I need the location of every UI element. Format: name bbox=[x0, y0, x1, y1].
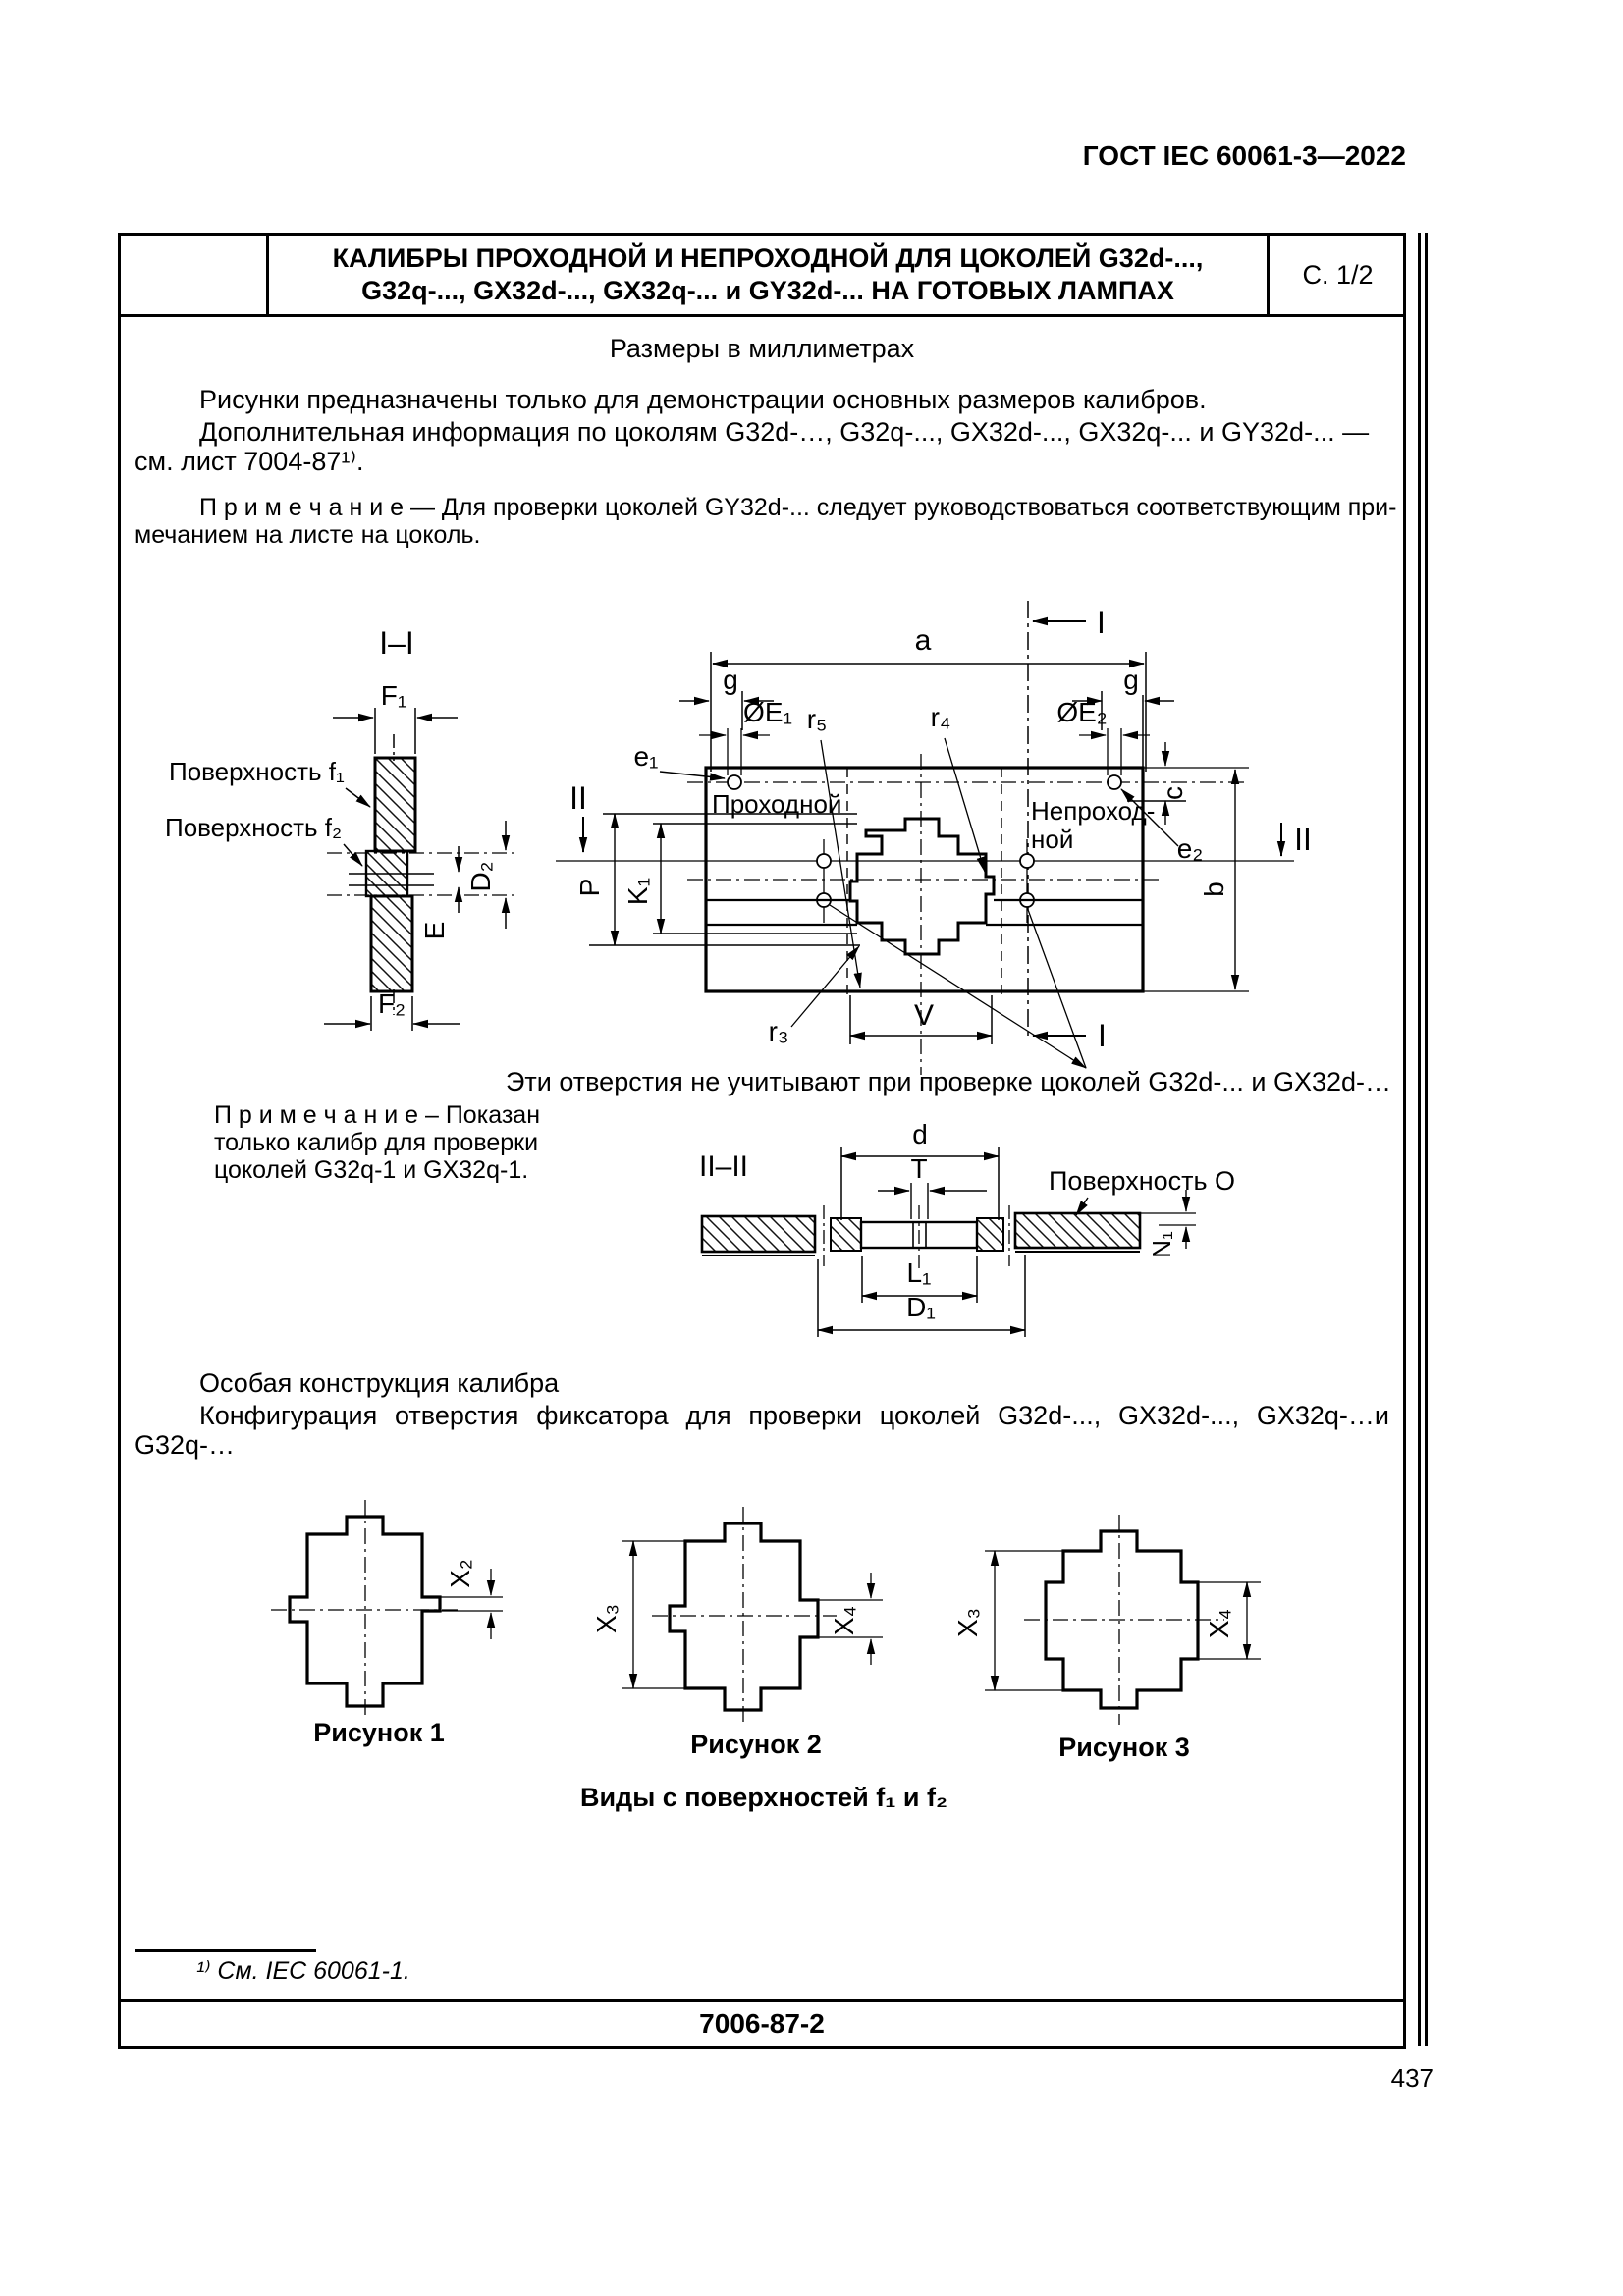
page-number: 437 bbox=[1335, 2063, 1434, 2094]
dim-label-r3: r₃ bbox=[769, 1016, 789, 1046]
locking-hole-outline bbox=[850, 819, 994, 954]
nogo-label-line1: Непроход- bbox=[1031, 796, 1155, 826]
dim-label-x3-fig2: X₃ bbox=[591, 1604, 622, 1633]
dim-label-g-right: g bbox=[1123, 665, 1139, 695]
footnote-text: ¹⁾ См. IEC 60061-1. bbox=[196, 1957, 687, 1985]
dim-label-x2: X₂ bbox=[445, 1559, 475, 1588]
standard-reference: ГОСТ IEC 60061-3—2022 bbox=[785, 140, 1406, 172]
special-body: Конфигурация отверстия фиксатора для про… bbox=[135, 1401, 1389, 1460]
section-mark-ii-right: II bbox=[1294, 822, 1312, 857]
dim-label-d2: D₂ bbox=[465, 861, 496, 891]
dim-label-x4-fig3: X₄ bbox=[1204, 1609, 1234, 1638]
dim-label-a: a bbox=[915, 624, 932, 657]
dim-label-e2: e₂ bbox=[1177, 833, 1203, 864]
dim-label-x3-fig3: X₃ bbox=[952, 1608, 983, 1637]
dim-label-n1: N₁ bbox=[1147, 1231, 1176, 1258]
figures-drawing: X₂ X₃ X₄ X₃ X₄ bbox=[236, 1492, 1414, 1733]
plan-view-drawing: I a g ØE₁ r₅ r₄ ØE₂ g c bbox=[535, 589, 1321, 1085]
dim-label-t: T bbox=[910, 1153, 927, 1184]
section-mark-i-top: I bbox=[1097, 605, 1106, 640]
nogo-label-line2: ной bbox=[1031, 825, 1073, 854]
gauge-note-line2: только калибр для проверки bbox=[214, 1129, 607, 1156]
gauge-plate-lower-section bbox=[371, 896, 412, 991]
paragraph-info-line2: см. лист 7004-87¹⁾. bbox=[135, 447, 1396, 476]
section-i-i-drawing: I–I F₁ Поверхность f₁ Поверхность f₂ E D… bbox=[157, 618, 540, 1041]
gauge-bar-block bbox=[977, 1218, 1003, 1251]
doc-number: 7006-87-2 bbox=[118, 2008, 1406, 2040]
dim-label-r5: r₅ bbox=[807, 704, 828, 734]
dim-label-l1: L₁ bbox=[906, 1257, 931, 1288]
dim-label-x4-fig2: X₄ bbox=[829, 1606, 859, 1635]
dim-label-c: c bbox=[1158, 786, 1188, 800]
figure3-caption: Рисунок 3 bbox=[1026, 1733, 1222, 1762]
intro-note-line1: П р и м е ч а н и е — Для проверки цокол… bbox=[135, 494, 1401, 521]
gauge-bar-block bbox=[831, 1218, 861, 1251]
right-double-rule bbox=[1418, 233, 1428, 2046]
footer-divider bbox=[121, 1999, 1403, 2002]
document-page: { "header": {"standard": "ГОСТ IEC 60061… bbox=[0, 0, 1623, 2296]
intro-note-line2: мечанием на листе на цоколь. bbox=[135, 521, 1401, 549]
paragraph-info-line1: Дополнительная информация по цоколям G32… bbox=[135, 417, 1396, 447]
dim-label-g-left: g bbox=[723, 665, 738, 695]
surface-f2-label: Поверхность f₂ bbox=[165, 813, 342, 842]
dim-label-b: b bbox=[1199, 881, 1229, 897]
dim-label-r4: r₄ bbox=[931, 702, 951, 732]
dim-label-e: E bbox=[419, 922, 450, 940]
figure1-caption: Рисунок 1 bbox=[281, 1718, 477, 1747]
special-heading: Особая конструкция калибра bbox=[135, 1368, 1396, 1398]
gauge-note-line3: цоколей G32q-1 и GX32q-1. bbox=[214, 1156, 607, 1184]
footnote-divider bbox=[135, 1949, 316, 1952]
gauge-plate-upper-section bbox=[375, 758, 415, 851]
surface-f1-label: Поверхность f₁ bbox=[169, 757, 345, 786]
section-mark-ii-left: II bbox=[569, 780, 587, 816]
pin-hole bbox=[817, 854, 831, 868]
gauge-note-line1: П р и м е ч а н и е – Показан bbox=[214, 1101, 607, 1129]
views-caption: Виды с поверхностей f₁ и f₂ bbox=[469, 1783, 1058, 1812]
dim-label-f1: F₁ bbox=[381, 680, 407, 711]
dim-label-d: d bbox=[912, 1119, 928, 1149]
dim-label-v: V bbox=[914, 999, 934, 1032]
paragraph-figures: Рисунки предназначены только для демонст… bbox=[135, 385, 1396, 414]
dim-label-p: P bbox=[574, 879, 605, 897]
section-ii-ii-title: II–II bbox=[699, 1150, 748, 1183]
title-block-divider bbox=[118, 233, 1406, 317]
dim-label-d1: D₁ bbox=[906, 1292, 936, 1322]
figure2-caption: Рисунок 2 bbox=[658, 1730, 854, 1759]
section-mark-i-bottom: I bbox=[1098, 1018, 1107, 1053]
dim-label-oe1: ØE₁ bbox=[743, 697, 792, 727]
gauge-note: П р и м е ч а н и е – Показан только кал… bbox=[214, 1101, 607, 1184]
section-i-i-title: I–I bbox=[379, 625, 414, 661]
go-gauge-hole bbox=[728, 775, 741, 789]
gauge-bar-right bbox=[1015, 1213, 1140, 1248]
pin-hole bbox=[1020, 854, 1034, 868]
units-note: Размеры в миллиметрах bbox=[118, 334, 1406, 363]
gauge-bar-left bbox=[702, 1216, 815, 1252]
dim-label-k1: K₁ bbox=[622, 878, 653, 905]
surface-o-label: Поверхность О bbox=[1049, 1166, 1235, 1196]
nogo-gauge-hole bbox=[1108, 775, 1121, 789]
dim-label-e1: e₁ bbox=[633, 741, 658, 772]
dim-label-f2: F₂ bbox=[378, 988, 406, 1019]
section-ii-ii-drawing: II–II d T Поверхность О N₁ L₁ bbox=[550, 1119, 1296, 1340]
ignored-holes-note: Эти отверстия не учитывают при проверке … bbox=[506, 1067, 1419, 1096]
